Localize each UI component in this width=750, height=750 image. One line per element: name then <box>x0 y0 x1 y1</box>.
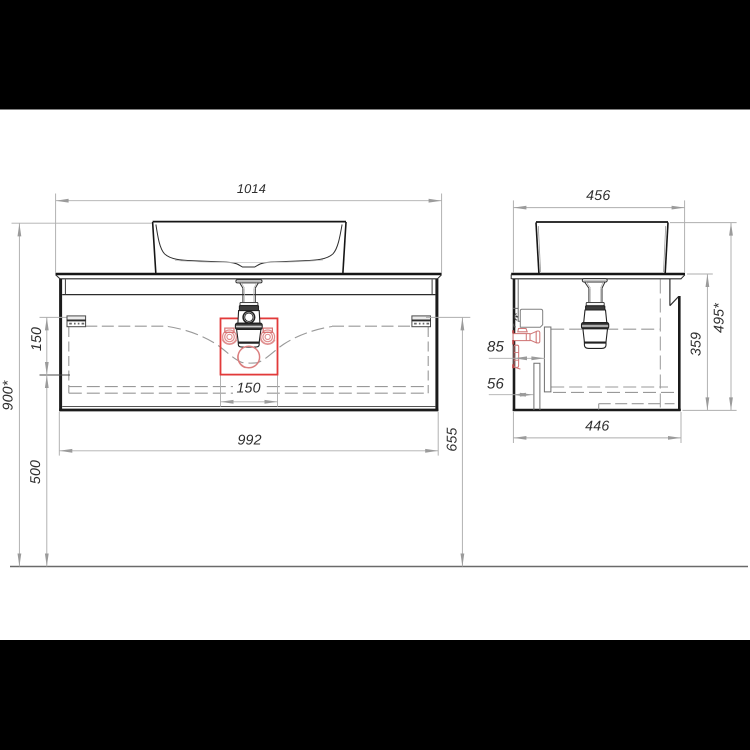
svg-text:446: 446 <box>585 419 609 435</box>
svg-text:56: 56 <box>487 375 505 392</box>
svg-text:150: 150 <box>29 327 45 351</box>
svg-text:85: 85 <box>487 338 505 355</box>
svg-text:456: 456 <box>586 188 610 204</box>
svg-text:359: 359 <box>689 332 705 356</box>
svg-text:495*: 495* <box>712 303 728 333</box>
svg-text:1014: 1014 <box>237 181 266 196</box>
svg-text:655: 655 <box>445 427 461 451</box>
svg-text:900*: 900* <box>1 380 17 410</box>
svg-text:992: 992 <box>237 432 261 448</box>
svg-text:500: 500 <box>28 460 44 484</box>
svg-text:150: 150 <box>236 381 260 397</box>
